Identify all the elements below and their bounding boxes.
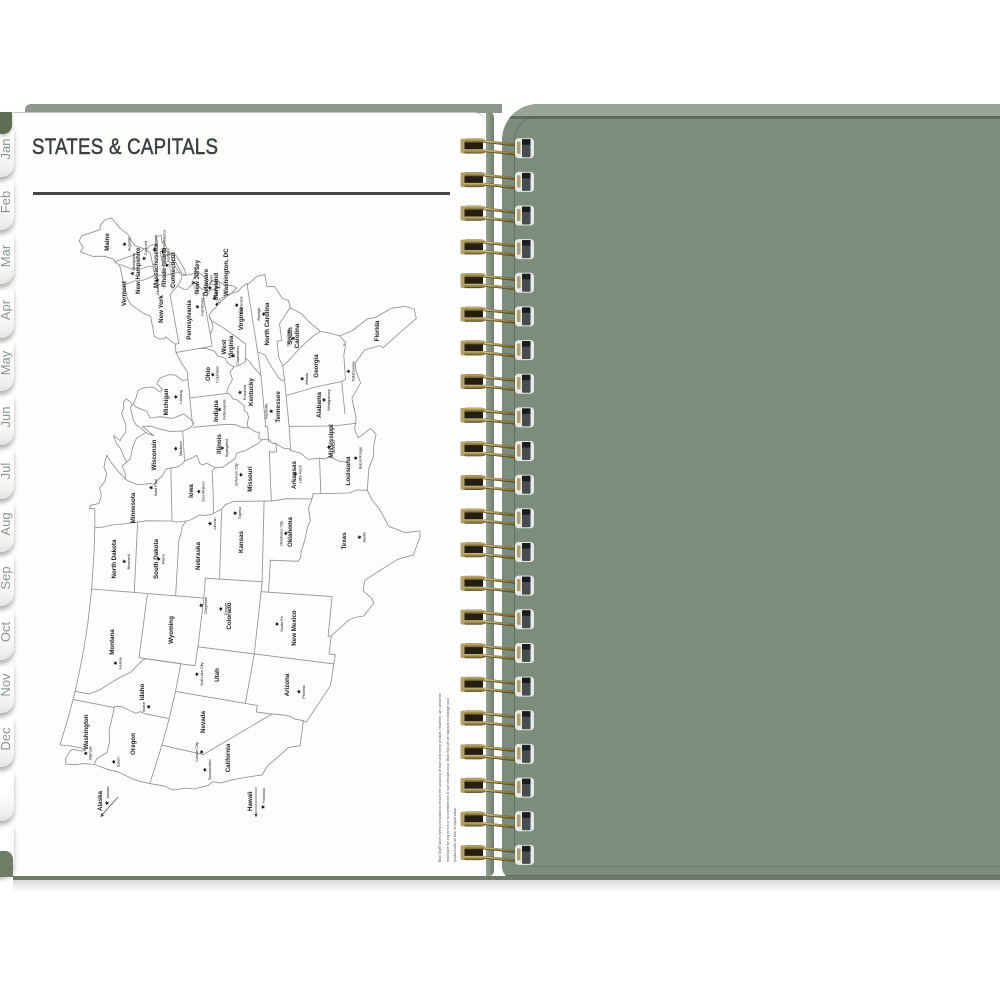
- svg-text:Cheyenne: Cheyenne: [204, 597, 208, 614]
- svg-text:Michigan: Michigan: [163, 388, 170, 415]
- svg-text:Connecticut: Connecticut: [170, 252, 177, 288]
- svg-text:Denver: Denver: [224, 602, 228, 615]
- svg-text:Illinois: Illinois: [216, 434, 223, 454]
- svg-text:Washington, DC: Washington, DC: [223, 248, 230, 296]
- svg-text:Massachusetts: Massachusetts: [153, 243, 160, 288]
- svg-text:North Carolina: North Carolina: [264, 302, 271, 346]
- svg-text:Carolina: Carolina: [294, 323, 301, 348]
- svg-text:Little Rock: Little Rock: [298, 465, 302, 483]
- svg-text:Texas: Texas: [341, 532, 348, 550]
- svg-text:Rhode Island: Rhode Island: [161, 248, 168, 287]
- svg-text:Oklahoma City: Oklahoma City: [279, 521, 283, 546]
- svg-text:Alaska: Alaska: [97, 790, 104, 811]
- svg-text:Des Moines: Des Moines: [202, 481, 206, 501]
- svg-text:Columbia: Columbia: [287, 329, 291, 346]
- svg-text:Arkansas: Arkansas: [291, 461, 298, 489]
- svg-text:Missouri: Missouri: [247, 466, 254, 492]
- svg-text:Maryland: Maryland: [213, 273, 220, 300]
- svg-text:Concord: Concord: [144, 241, 148, 255]
- svg-text:Kansas: Kansas: [238, 530, 245, 553]
- svg-text:Olympia: Olympia: [89, 745, 93, 760]
- svg-text:Salem: Salem: [117, 756, 121, 767]
- svg-text:New York: New York: [158, 295, 165, 323]
- svg-text:Richmond: Richmond: [240, 297, 244, 314]
- svg-text:New Hampshire: New Hampshire: [135, 247, 142, 294]
- svg-text:Wisconsin: Wisconsin: [151, 439, 158, 470]
- svg-text:Columbus: Columbus: [216, 366, 220, 383]
- svg-text:Delaware: Delaware: [203, 268, 210, 296]
- svg-text:Baton Rouge: Baton Rouge: [359, 447, 363, 469]
- svg-text:Jackson: Jackson: [332, 440, 336, 454]
- svg-text:Montgomery: Montgomery: [327, 389, 331, 410]
- svg-text:West: West: [221, 340, 228, 355]
- svg-text:Hawaii: Hawaii: [247, 791, 254, 811]
- svg-text:Nashville: Nashville: [265, 403, 269, 418]
- svg-text:Arizona: Arizona: [284, 673, 291, 696]
- svg-text:Minnesota: Minnesota: [130, 492, 137, 523]
- svg-text:Frankfort: Frankfort: [243, 384, 247, 400]
- svg-text:Saint Paul: Saint Paul: [154, 479, 158, 496]
- svg-text:Augusta: Augusta: [128, 236, 132, 251]
- svg-text:Kentucky: Kentucky: [248, 378, 255, 406]
- svg-text:Santa Fe: Santa Fe: [280, 616, 284, 631]
- svg-text:Maine: Maine: [104, 233, 111, 251]
- svg-text:Nebraska: Nebraska: [195, 542, 202, 570]
- svg-text:Nevada: Nevada: [200, 710, 207, 733]
- svg-text:Oklahoma: Oklahoma: [287, 516, 294, 546]
- svg-text:Florida: Florida: [374, 320, 381, 341]
- svg-text:Georgia: Georgia: [313, 354, 320, 378]
- svg-text:Tennessee: Tennessee: [275, 391, 282, 423]
- svg-text:North Dakota: North Dakota: [111, 539, 118, 578]
- svg-text:Tallahassee: Tallahassee: [352, 361, 356, 381]
- svg-text:Ohio: Ohio: [205, 367, 212, 381]
- svg-text:Providence: Providence: [163, 230, 167, 249]
- svg-text:Vermont: Vermont: [121, 281, 128, 306]
- svg-text:Raleigh: Raleigh: [257, 308, 261, 321]
- svg-text:Phoenix: Phoenix: [302, 685, 306, 699]
- svg-text:Salt Lake City: Salt Lake City: [200, 662, 204, 686]
- svg-text:Utah: Utah: [214, 668, 221, 682]
- svg-text:Atlanta: Atlanta: [305, 372, 309, 385]
- svg-text:Alabama: Alabama: [316, 392, 323, 418]
- svg-text:Wyoming: Wyoming: [168, 616, 175, 644]
- svg-text:Idaho: Idaho: [139, 684, 146, 701]
- svg-text:Washington: Washington: [83, 714, 90, 749]
- svg-text:Lansing: Lansing: [179, 390, 183, 403]
- svg-text:Carson City: Carson City: [195, 742, 199, 762]
- svg-text:Harrisburg: Harrisburg: [200, 298, 204, 316]
- svg-text:Sacramento: Sacramento: [208, 760, 212, 780]
- svg-text:California: California: [225, 743, 232, 772]
- svg-text:Indianapolis: Indianapolis: [222, 399, 226, 419]
- svg-text:Pierre: Pierre: [162, 554, 166, 564]
- svg-text:Jefferson City: Jefferson City: [234, 463, 238, 486]
- svg-text:Springfield: Springfield: [225, 439, 229, 457]
- svg-text:Austin: Austin: [362, 532, 366, 543]
- svg-text:New Mexico: New Mexico: [291, 610, 298, 646]
- svg-text:Madison: Madison: [179, 441, 183, 455]
- svg-text:Iowa: Iowa: [188, 484, 195, 498]
- svg-text:Charleston: Charleston: [236, 346, 240, 364]
- svg-text:Topeka: Topeka: [238, 506, 242, 519]
- svg-text:Honolulu: Honolulu: [262, 788, 266, 803]
- svg-text:Pennsylvania: Pennsylvania: [186, 300, 193, 340]
- svg-text:Juneau: Juneau: [106, 787, 110, 799]
- svg-text:Louisiana: Louisiana: [345, 456, 352, 485]
- svg-text:Boise: Boise: [142, 702, 146, 712]
- svg-text:Bismarck: Bismarck: [127, 554, 131, 570]
- svg-text:Helena: Helena: [118, 656, 122, 669]
- svg-text:Lincoln: Lincoln: [213, 517, 217, 529]
- svg-text:Oregon: Oregon: [130, 733, 137, 755]
- svg-text:Montana: Montana: [109, 629, 116, 655]
